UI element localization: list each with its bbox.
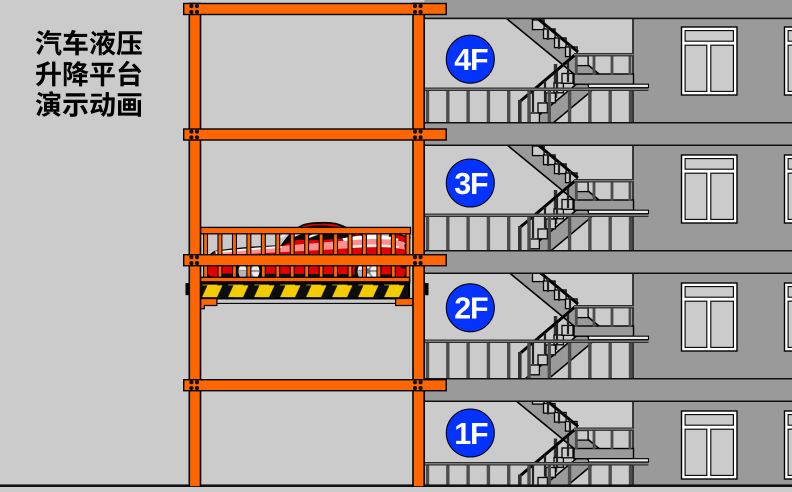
svg-text:1F: 1F — [454, 417, 488, 451]
svg-text:4F: 4F — [454, 43, 488, 77]
svg-text:3F: 3F — [454, 167, 488, 201]
svg-text:2F: 2F — [454, 292, 488, 326]
